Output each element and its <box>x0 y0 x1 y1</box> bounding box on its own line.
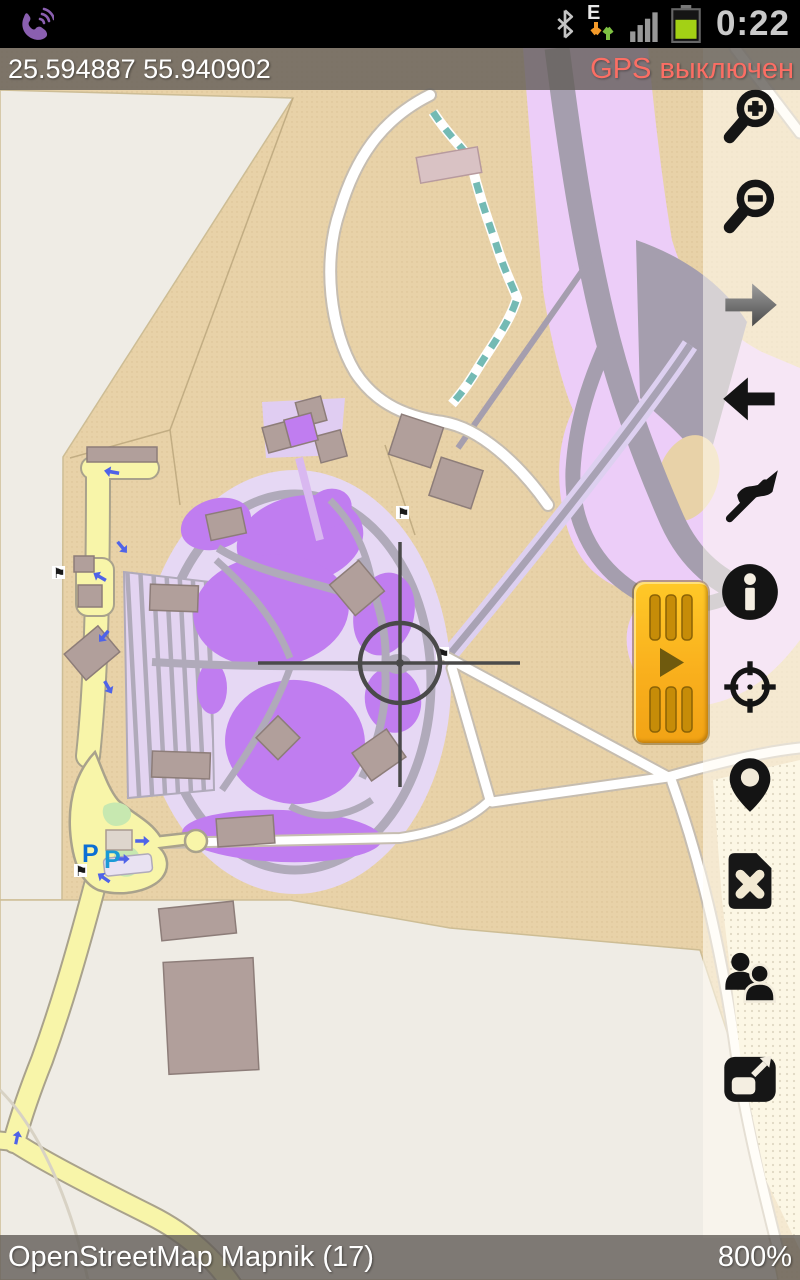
track-recorder-panel[interactable] <box>634 582 708 743</box>
delete-file-icon <box>720 851 780 911</box>
map-source-label[interactable]: OpenStreetMap Mapnik (17) <box>0 1241 718 1274</box>
mobile-data-arrows-icon: E <box>585 4 621 44</box>
clock: 0:22 <box>716 4 790 44</box>
undo-back-button[interactable] <box>720 370 780 430</box>
zoom-level-label: 800% <box>718 1241 800 1274</box>
target-icon <box>720 657 780 717</box>
arrow-left-icon <box>720 370 780 430</box>
network-mode-label: E <box>587 2 600 25</box>
zoom-in-button[interactable] <box>720 87 780 147</box>
zoom-out-icon <box>720 177 780 237</box>
coordinate-bar: 25.594887 55.940902 GPS выключен <box>0 48 800 90</box>
track-flag-button[interactable] <box>720 466 780 526</box>
parking-label: P <box>82 840 99 868</box>
map-pin-icon <box>720 755 780 815</box>
status-bar: E 0:22 <box>0 0 800 48</box>
people-icon <box>720 948 780 1008</box>
redo-forward-button[interactable] <box>720 276 780 336</box>
zoom-out-button[interactable] <box>720 177 780 237</box>
flag-icon <box>720 466 780 526</box>
flag-marker: ⚑ <box>53 565 66 581</box>
app-screen: ⚑ ⚑ ⚑ ⚑ P P <box>0 0 800 1280</box>
fullscreen-icon <box>720 1044 780 1104</box>
info-button[interactable] <box>720 562 780 622</box>
play-icon[interactable] <box>660 648 684 677</box>
poi-marker-button[interactable] <box>720 755 780 815</box>
viber-call-icon <box>14 4 54 44</box>
bluetooth-icon <box>554 6 576 42</box>
info-icon <box>720 562 780 622</box>
signal-strength-icon <box>630 6 662 42</box>
friends-button[interactable] <box>720 948 780 1008</box>
flag-marker: ⚑ <box>397 505 410 521</box>
parking-label: P <box>104 846 121 874</box>
gps-target-button[interactable] <box>720 657 780 717</box>
zoom-in-icon <box>720 87 780 147</box>
clear-track-button[interactable] <box>720 851 780 911</box>
map-area-offwhite-south <box>0 900 778 1280</box>
bottom-bar: OpenStreetMap Mapnik (17) 800% <box>0 1235 800 1280</box>
fullscreen-button[interactable] <box>720 1044 780 1104</box>
battery-icon <box>671 5 701 43</box>
arrow-right-icon <box>720 276 780 336</box>
coordinates-display: 25.594887 55.940902 <box>0 54 590 85</box>
gps-status: GPS выключен <box>590 53 800 86</box>
